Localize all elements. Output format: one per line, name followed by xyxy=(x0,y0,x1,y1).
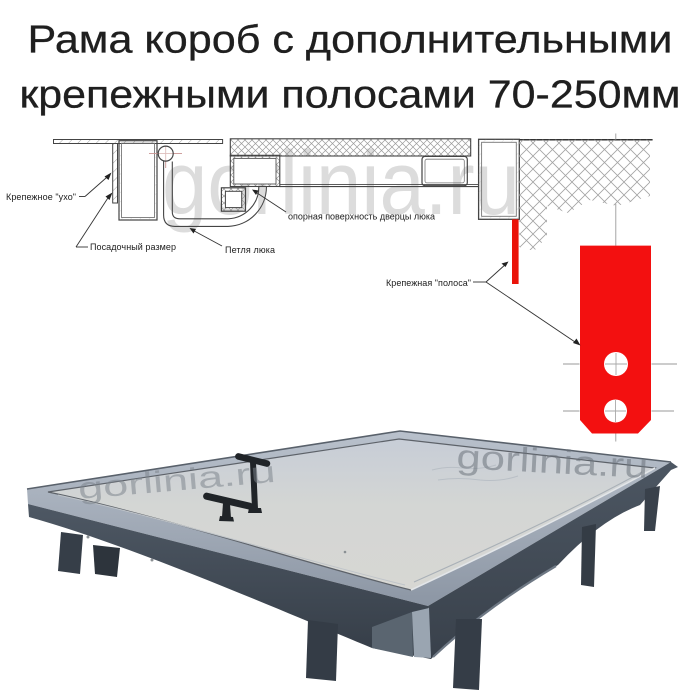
svg-text:крепежными полосами 70-250мм: крепежными полосами 70-250мм xyxy=(20,73,681,116)
svg-text:Крепежное "ухо": Крепежное "ухо" xyxy=(6,192,76,202)
svg-text:Крепежная "полоса": Крепежная "полоса" xyxy=(386,278,471,288)
svg-text:Посадочный размер: Посадочный размер xyxy=(90,242,176,252)
svg-text:Рама короб с дополнительными: Рама короб с дополнительными xyxy=(28,19,673,62)
svg-text:опорная поверхность дверцы люк: опорная поверхность дверцы люка xyxy=(288,212,435,222)
svg-text:Петля люка: Петля люка xyxy=(225,245,275,255)
